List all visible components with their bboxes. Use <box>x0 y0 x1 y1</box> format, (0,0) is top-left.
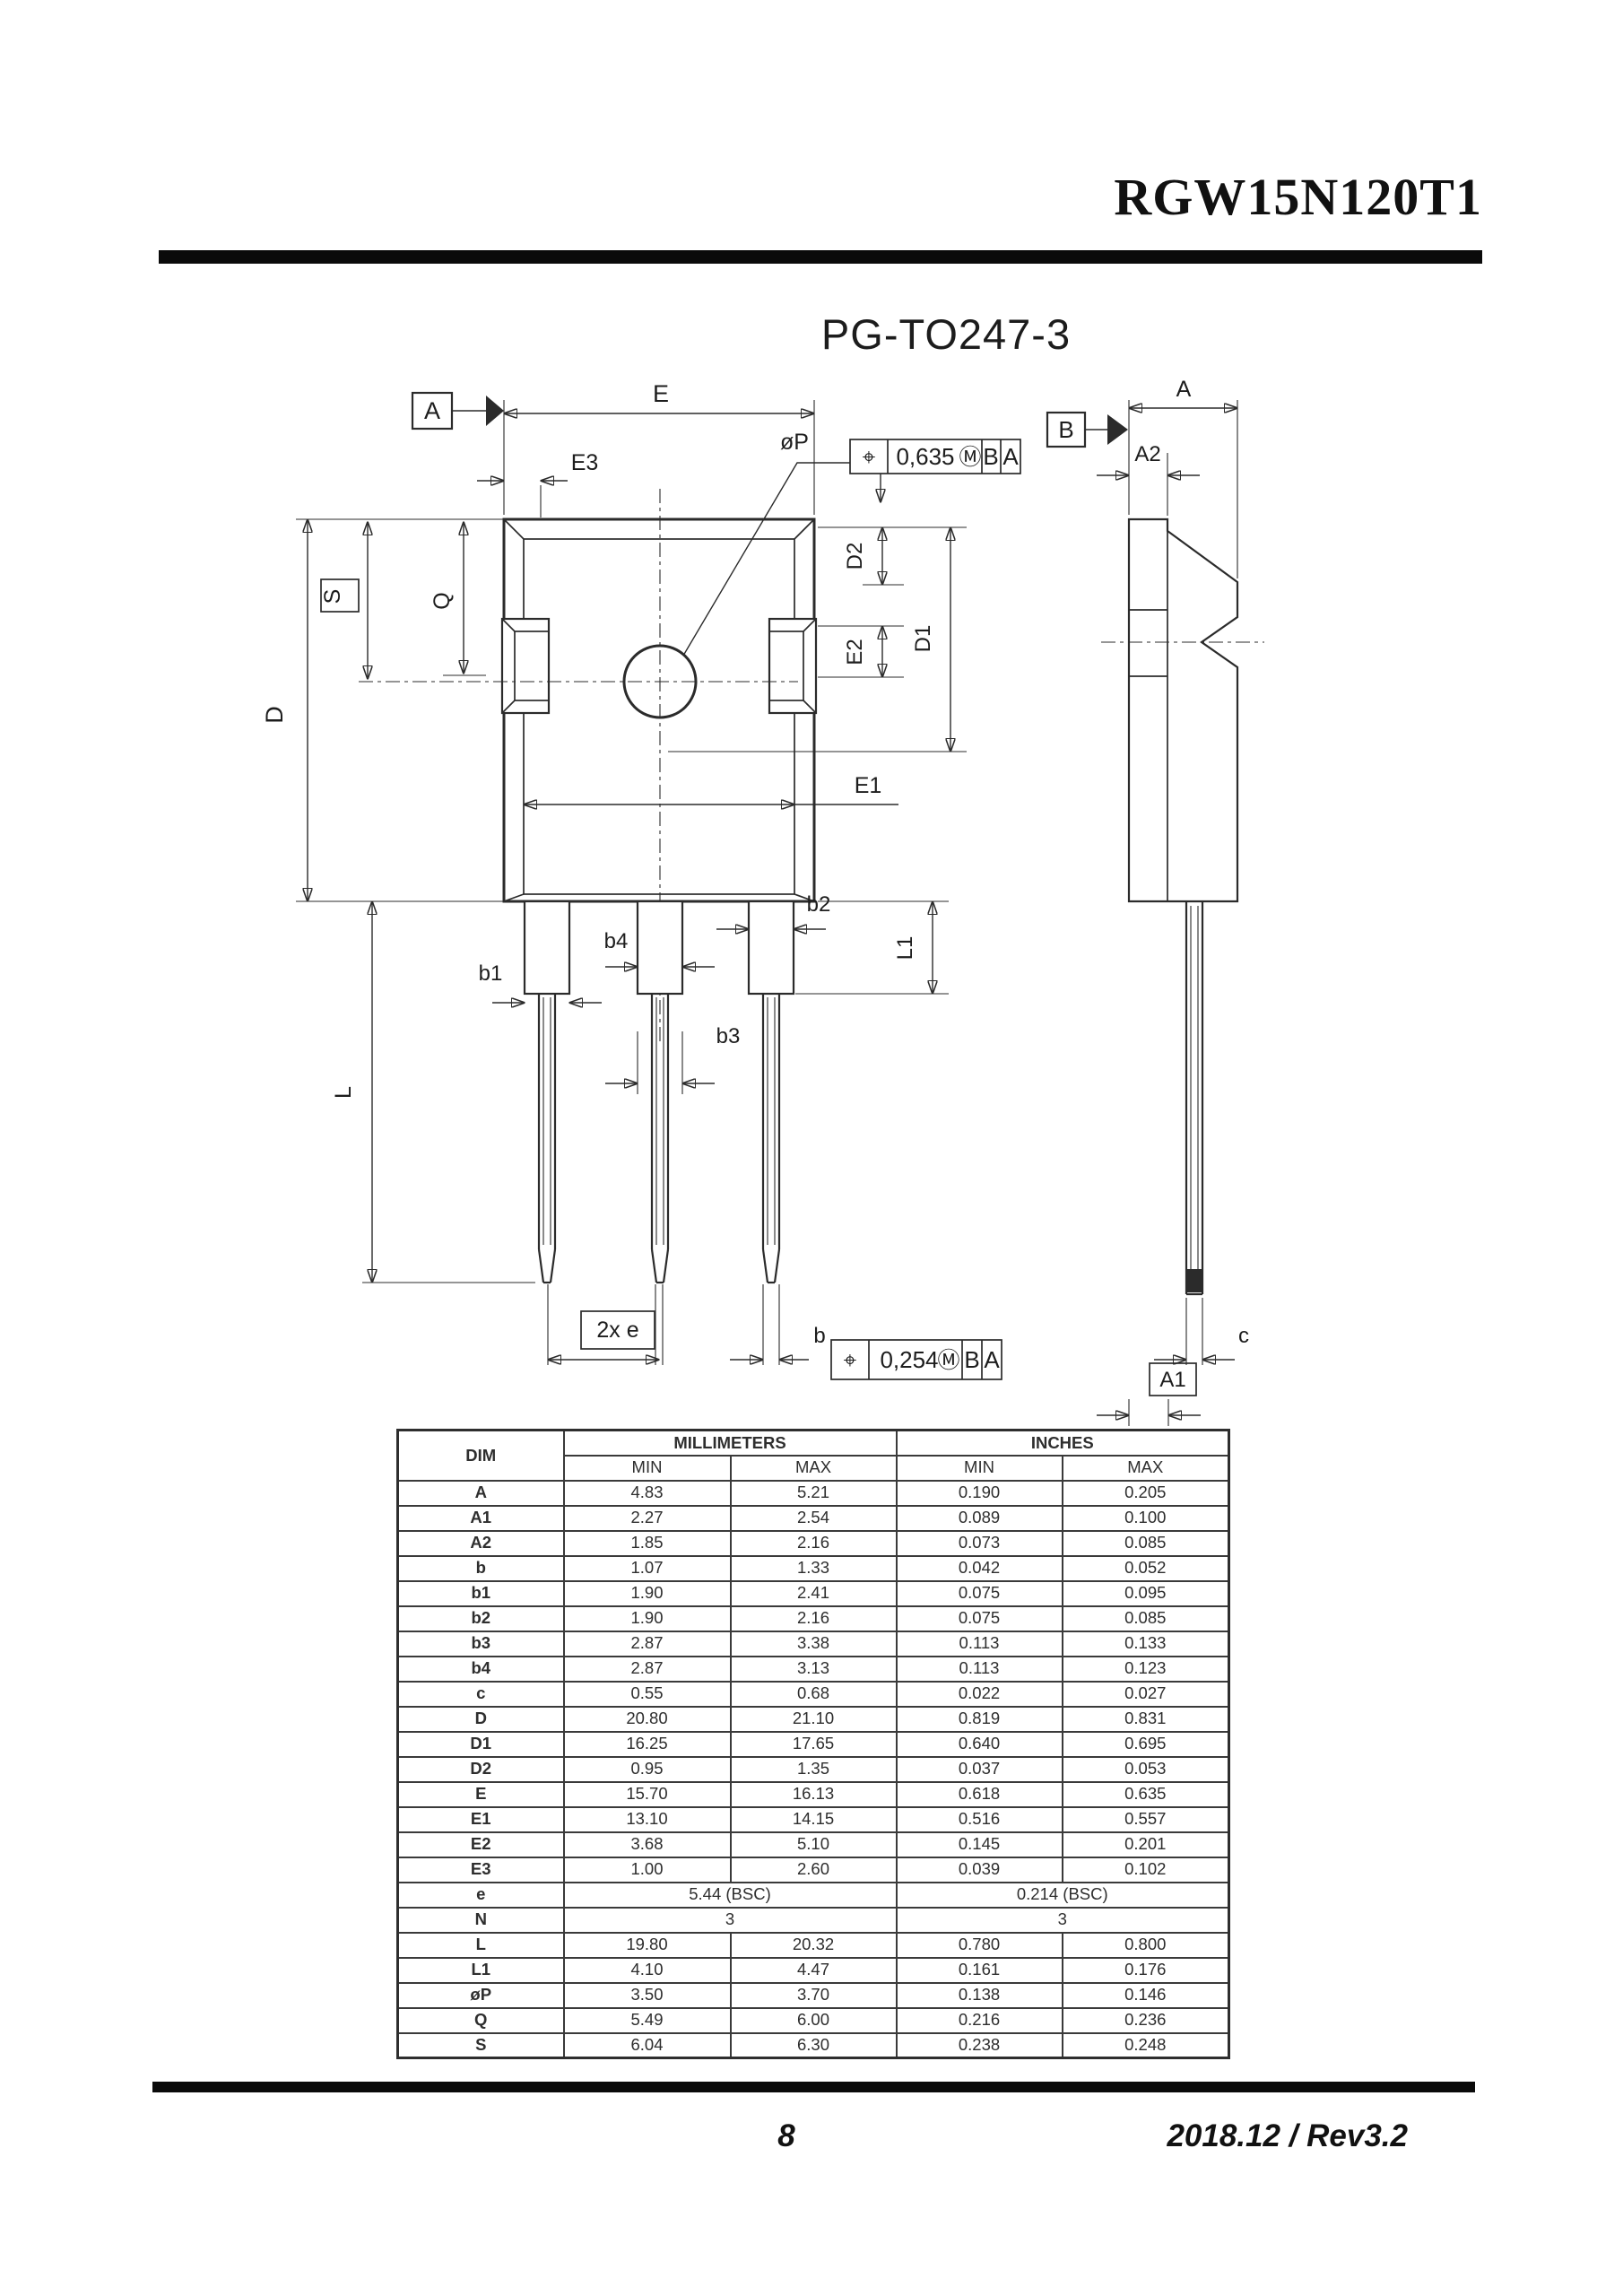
dim-label-Q: Q <box>430 592 455 609</box>
table-row: c0.550.680.0220.027 <box>398 1682 1229 1707</box>
table-cell: D2 <box>398 1757 564 1782</box>
table-cell: 0.022 <box>897 1682 1063 1707</box>
datum-a-label: A <box>424 397 440 424</box>
dim-label-b2: b2 <box>807 892 831 917</box>
table-cell: 17.65 <box>731 1732 897 1757</box>
table-cell: c <box>398 1682 564 1707</box>
dim-label-L: L <box>331 1086 356 1099</box>
table-cell: 0.557 <box>1063 1807 1229 1832</box>
table-cell: 0.618 <box>897 1782 1063 1807</box>
revision-label: 2018.12 / Rev3.2 <box>1167 2118 1408 2154</box>
table-cell: 0.042 <box>897 1556 1063 1581</box>
table-cell: 16.25 <box>564 1732 731 1757</box>
dim-E2: E2 <box>818 626 904 677</box>
table-cell: 0.085 <box>1063 1531 1229 1556</box>
table-cell: 2.16 <box>731 1606 897 1631</box>
table-cell: 0.190 <box>897 1481 1063 1506</box>
position-symbol-icon: ⌖ <box>863 443 876 470</box>
table-cell: 0.039 <box>897 1857 1063 1883</box>
col-header-mm-max: MAX <box>731 1456 897 1481</box>
table-cell: 14.15 <box>731 1807 897 1832</box>
table-row: A21.852.160.0730.085 <box>398 1531 1229 1556</box>
position-symbol-icon: ⌖ <box>844 1346 857 1373</box>
dim-label-b4: b4 <box>604 929 629 953</box>
table-cell: 4.83 <box>564 1481 731 1506</box>
fcf-datum-b: B <box>983 443 998 470</box>
table-cell: e <box>398 1883 564 1908</box>
table-cell: 0.214 (BSC) <box>897 1883 1229 1908</box>
col-header-in-min: MIN <box>897 1456 1063 1481</box>
table-row: D116.2517.650.6400.695 <box>398 1732 1229 1757</box>
table-cell: 0.95 <box>564 1757 731 1782</box>
table-cell: 0.102 <box>1063 1857 1229 1883</box>
dim-Q: Q <box>430 522 486 675</box>
table-cell: D1 <box>398 1732 564 1757</box>
dim-table-body: A4.835.210.1900.205A12.272.540.0890.100A… <box>398 1481 1229 2058</box>
table-cell: 16.13 <box>731 1782 897 1807</box>
table-cell: 0.095 <box>1063 1581 1229 1606</box>
table-cell: 20.80 <box>564 1707 731 1732</box>
dim-label-A2: A2 <box>1134 442 1160 466</box>
datum-triangle-icon <box>486 396 504 426</box>
table-cell: 5.49 <box>564 2008 731 2033</box>
dim-label-L1: L1 <box>893 936 917 961</box>
dim-label-D2: D2 <box>843 543 867 570</box>
table-cell: A1 <box>398 1506 564 1531</box>
table-row: A4.835.210.1900.205 <box>398 1481 1229 1506</box>
dim-c: c <box>1154 1298 1249 1365</box>
table-cell: 6.04 <box>564 2033 731 2058</box>
col-header-millimeters: MILLIMETERS <box>564 1431 897 1456</box>
table-row: b1.071.330.0420.052 <box>398 1556 1229 1581</box>
table-row: e5.44 (BSC)0.214 (BSC) <box>398 1883 1229 1908</box>
table-cell: 0.205 <box>1063 1481 1229 1506</box>
dim-E: E <box>504 380 814 515</box>
table-cell: 0.238 <box>897 2033 1063 2058</box>
feature-control-frame-bottom: ⌖ 0,254 Ⓜ B A <box>831 1340 1002 1379</box>
table-cell: 6.30 <box>731 2033 897 2058</box>
dim-D: D <box>261 519 308 901</box>
feature-control-frame-top: ⌖ 0,635 Ⓜ B A <box>850 439 1020 502</box>
table-cell: D <box>398 1707 564 1732</box>
dim-label-2xe: 2x e <box>596 1318 638 1343</box>
table-cell: 1.33 <box>731 1556 897 1581</box>
table-cell: 15.70 <box>564 1782 731 1807</box>
table-cell: 1.90 <box>564 1606 731 1631</box>
tolerance-value: 0,635 <box>896 443 954 470</box>
fcf-datum-a: A <box>984 1346 1000 1373</box>
dim-label-b3: b3 <box>716 1024 741 1048</box>
table-cell: 0.236 <box>1063 2008 1229 2033</box>
table-cell: b <box>398 1556 564 1581</box>
datum-b-label: B <box>1058 416 1073 443</box>
table-cell: b4 <box>398 1657 564 1682</box>
table-cell: E1 <box>398 1807 564 1832</box>
table-cell: 1.85 <box>564 1531 731 1556</box>
table-cell: L1 <box>398 1958 564 1983</box>
table-cell: 4.10 <box>564 1958 731 1983</box>
table-cell: 0.073 <box>897 1531 1063 1556</box>
right-tab <box>769 619 816 713</box>
table-row: D20.951.350.0370.053 <box>398 1757 1229 1782</box>
table-cell: 0.027 <box>1063 1682 1229 1707</box>
table-cell: 0.201 <box>1063 1832 1229 1857</box>
table-cell: 2.60 <box>731 1857 897 1883</box>
table-cell: 0.100 <box>1063 1506 1229 1531</box>
table-cell: 4.47 <box>731 1958 897 1983</box>
mmc-modifier-icon: Ⓜ <box>937 1348 959 1373</box>
table-row: L14.104.470.1610.176 <box>398 1958 1229 1983</box>
table-cell: 0.113 <box>897 1657 1063 1682</box>
table-cell: 3.70 <box>731 1983 897 2008</box>
table-cell: 2.87 <box>564 1631 731 1657</box>
table-cell: 0.216 <box>897 2008 1063 2033</box>
table-cell: øP <box>398 1983 564 2008</box>
dim-label-b1: b1 <box>479 961 503 986</box>
table-row: øP3.503.700.1380.146 <box>398 1983 1229 2008</box>
dim-A1: A1 <box>1097 1363 1201 1426</box>
table-row: b32.873.380.1130.133 <box>398 1631 1229 1657</box>
fcf-datum-b: B <box>964 1346 979 1373</box>
table-cell: 2.16 <box>731 1531 897 1556</box>
table-cell: 19.80 <box>564 1933 731 1958</box>
footer-rule <box>152 2082 1475 2092</box>
table-cell: E <box>398 1782 564 1807</box>
leads <box>525 901 794 1283</box>
dim-pitch-e: 2x e <box>548 1311 659 1360</box>
table-cell: 0.113 <box>897 1631 1063 1657</box>
table-cell: 1.35 <box>731 1757 897 1782</box>
table-cell: 0.161 <box>897 1958 1063 1983</box>
table-cell: 2.87 <box>564 1657 731 1682</box>
table-cell: 3.13 <box>731 1657 897 1682</box>
dim-label-D: D <box>261 706 288 724</box>
tolerance-value: 0,254 <box>880 1346 938 1373</box>
dim-label-c: c <box>1238 1324 1249 1348</box>
table-cell: 0.089 <box>897 1506 1063 1531</box>
table-cell: 1.07 <box>564 1556 731 1581</box>
mmc-modifier-icon: Ⓜ <box>959 445 981 470</box>
left-tab <box>502 619 549 713</box>
col-header-inches: INCHES <box>897 1431 1229 1456</box>
dim-b3: b3 <box>605 1024 740 1094</box>
table-cell: b1 <box>398 1581 564 1606</box>
table-cell: 13.10 <box>564 1807 731 1832</box>
table-cell: S <box>398 2033 564 2058</box>
table-cell: 0.800 <box>1063 1933 1229 1958</box>
table-cell: 0.55 <box>564 1682 731 1707</box>
table-cell: 1.00 <box>564 1857 731 1883</box>
table-row: b21.902.160.0750.085 <box>398 1606 1229 1631</box>
table-cell: 0.145 <box>897 1832 1063 1857</box>
table-cell: 0.176 <box>1063 1958 1229 1983</box>
table-cell: 3 <box>564 1908 897 1933</box>
table-cell: 0.819 <box>897 1707 1063 1732</box>
table-cell: 0.695 <box>1063 1732 1229 1757</box>
dim-label-oP: øP <box>780 430 809 455</box>
table-cell: 21.10 <box>731 1707 897 1732</box>
table-cell: N <box>398 1908 564 1933</box>
dim-label-A: A <box>1176 377 1192 402</box>
table-cell: b3 <box>398 1631 564 1657</box>
datasheet-page: RGW15N120T1 PG-TO247-3 <box>0 0 1623 2296</box>
table-cell: 3.68 <box>564 1832 731 1857</box>
table-cell: 0.138 <box>897 1983 1063 2008</box>
table-row: D20.8021.100.8190.831 <box>398 1707 1229 1732</box>
table-cell: 3 <box>897 1908 1229 1933</box>
dim-label-D1: D1 <box>911 625 935 653</box>
dim-S: S <box>320 522 368 679</box>
dim-label-b: b <box>813 1324 825 1348</box>
datum-flag-b: B <box>1047 413 1128 447</box>
table-row: b42.873.130.1130.123 <box>398 1657 1229 1682</box>
datum-flag-a: A <box>412 393 504 429</box>
table-cell: 0.640 <box>897 1732 1063 1757</box>
table-row: S6.046.300.2380.248 <box>398 2033 1229 2058</box>
dim-label-E2: E2 <box>843 639 867 665</box>
fcf-datum-a: A <box>1002 443 1019 470</box>
table-row: E113.1014.150.5160.557 <box>398 1807 1229 1832</box>
table-row: L19.8020.320.7800.800 <box>398 1933 1229 1958</box>
table-cell: 5.44 (BSC) <box>564 1883 897 1908</box>
table-row: N33 <box>398 1908 1229 1933</box>
dim-E3: E3 <box>477 450 598 517</box>
table-cell: 0.516 <box>897 1807 1063 1832</box>
table-cell: 3.50 <box>564 1983 731 2008</box>
table-cell: 0.053 <box>1063 1757 1229 1782</box>
table-cell: 1.90 <box>564 1581 731 1606</box>
table-cell: A <box>398 1481 564 1506</box>
table-cell: 20.32 <box>731 1933 897 1958</box>
table-cell: E2 <box>398 1832 564 1857</box>
dim-label-A1: A1 <box>1159 1368 1185 1392</box>
table-cell: 2.27 <box>564 1506 731 1531</box>
dim-label-E3: E3 <box>571 450 599 475</box>
table-cell: 0.052 <box>1063 1556 1229 1581</box>
package-drawing: A E E3 øP ⌖ 0,635 <box>0 0 1623 1435</box>
col-header-mm-min: MIN <box>564 1456 731 1481</box>
table-cell: Q <box>398 2008 564 2033</box>
table-row: E23.685.100.1450.201 <box>398 1832 1229 1857</box>
table-cell: 0.831 <box>1063 1707 1229 1732</box>
dim-L: L <box>331 901 535 1283</box>
dimensions-table: DIM MILLIMETERS INCHES MIN MAX MIN MAX A… <box>396 1429 1230 2059</box>
table-cell: A2 <box>398 1531 564 1556</box>
table-cell: 5.10 <box>731 1832 897 1857</box>
table-cell: 0.123 <box>1063 1657 1229 1682</box>
table-row: Q5.496.000.2160.236 <box>398 2008 1229 2033</box>
dim-label-E1: E1 <box>855 773 882 798</box>
table-row: A12.272.540.0890.100 <box>398 1506 1229 1531</box>
col-header-dim: DIM <box>398 1431 564 1481</box>
dim-label-E: E <box>653 380 669 407</box>
table-cell: E3 <box>398 1857 564 1883</box>
col-header-in-max: MAX <box>1063 1456 1229 1481</box>
table-cell: 0.075 <box>897 1581 1063 1606</box>
table-cell: 0.075 <box>897 1606 1063 1631</box>
datum-triangle-icon <box>1107 414 1128 445</box>
table-cell: 2.54 <box>731 1506 897 1531</box>
table-cell: b2 <box>398 1606 564 1631</box>
side-view <box>1101 519 1264 1294</box>
table-cell: L <box>398 1933 564 1958</box>
dim-D2: D2 <box>818 527 967 585</box>
table-cell: 0.146 <box>1063 1983 1229 2008</box>
front-view <box>296 489 816 1365</box>
table-cell: 2.41 <box>731 1581 897 1606</box>
table-cell: 0.635 <box>1063 1782 1229 1807</box>
table-cell: 0.68 <box>731 1682 897 1707</box>
table-cell: 3.38 <box>731 1631 897 1657</box>
package-body-side <box>1129 519 1237 901</box>
table-cell: 0.037 <box>897 1757 1063 1782</box>
table-cell: 5.21 <box>731 1481 897 1506</box>
table-cell: 6.00 <box>731 2008 897 2033</box>
table-header-row: DIM MILLIMETERS INCHES <box>398 1431 1229 1456</box>
table-cell: 0.085 <box>1063 1606 1229 1631</box>
dim-label-S: S <box>320 589 345 604</box>
table-row: E31.002.600.0390.102 <box>398 1857 1229 1883</box>
table-row: b11.902.410.0750.095 <box>398 1581 1229 1606</box>
page-number: 8 <box>767 2118 806 2154</box>
dim-b: b <box>730 1324 826 1360</box>
table-row: E15.7016.130.6180.635 <box>398 1782 1229 1807</box>
dim-A2: A2 <box>1097 442 1200 516</box>
table-cell: 0.780 <box>897 1933 1063 1958</box>
table-cell: 0.133 <box>1063 1631 1229 1657</box>
table-cell: 0.248 <box>1063 2033 1229 2058</box>
